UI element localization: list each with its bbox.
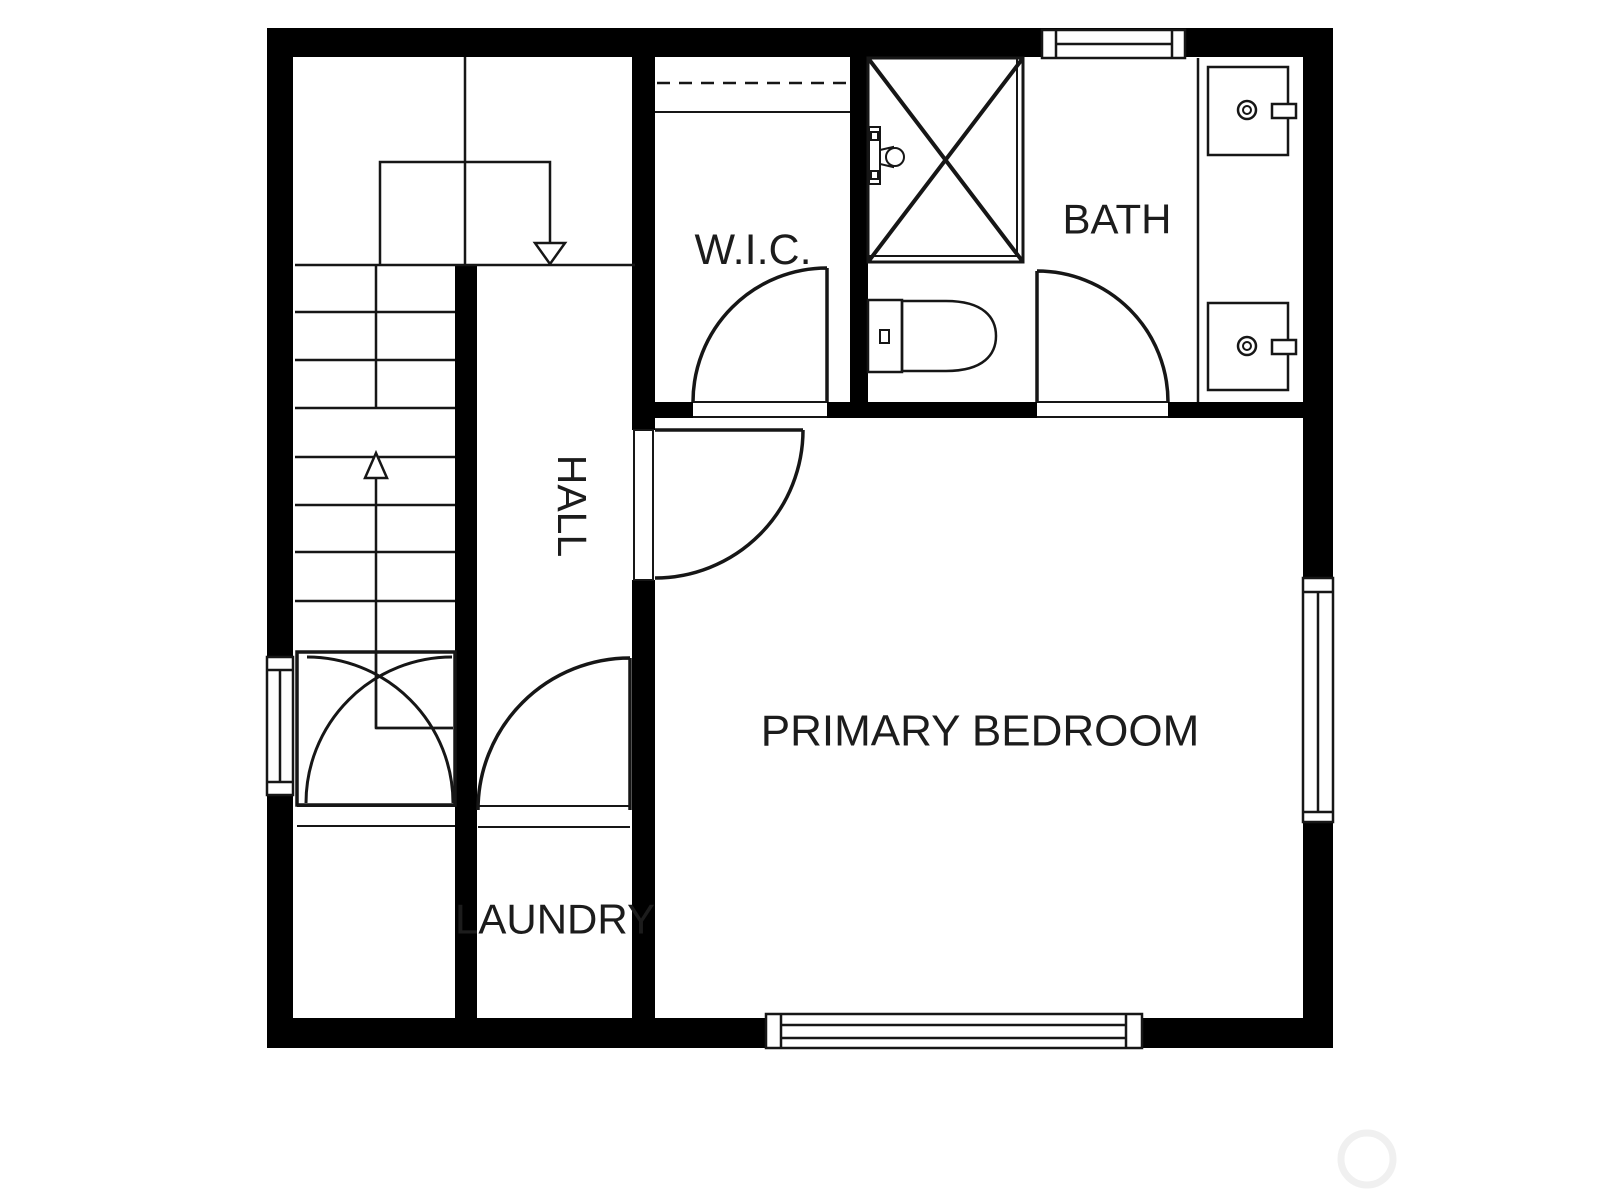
vanity [1198, 58, 1296, 402]
toilet-flush-button [880, 330, 889, 343]
watermark-circle [1341, 1133, 1393, 1185]
threshold-lines [297, 402, 1168, 827]
floor-plan-page: W.I.C. BATH HALL PRIMARY BEDROOM LAUNDRY [0, 0, 1600, 1200]
wall-wic-shower [850, 57, 868, 402]
toilet [868, 300, 996, 372]
primary-bedroom-label: PRIMARY BEDROOM [761, 707, 1199, 756]
stair-vestibule [297, 652, 455, 805]
wic-door [693, 268, 827, 402]
double-door-arc-left [307, 657, 453, 803]
floor-plan: W.I.C. BATH HALL PRIMARY BEDROOM LAUNDRY [0, 0, 1600, 1200]
toilet-tank [868, 300, 902, 372]
stairs-up-arrow-shaft [376, 478, 453, 728]
shower-valve-icon [869, 127, 904, 184]
hall-label: HALL [549, 455, 595, 558]
window-bottom-bg [766, 1014, 1142, 1048]
laundry-label: LAUNDRY [455, 896, 655, 943]
bedroom-door-jamb [632, 430, 655, 580]
sink-bottom-icon [1208, 303, 1296, 390]
wall-right [1303, 28, 1333, 1048]
hall-door [478, 658, 630, 810]
linework [267, 30, 1333, 1048]
wic-label: W.I.C. [694, 226, 811, 274]
toilet-bowl [902, 301, 996, 371]
bath-label: BATH [1063, 196, 1172, 243]
wall-left [267, 28, 293, 1048]
bath-door [1037, 271, 1168, 402]
windows [267, 30, 1333, 1048]
bedroom-door [655, 430, 803, 578]
wall-openings [267, 30, 1333, 1048]
walls [267, 28, 1333, 1048]
stairs-down-arrow-head-icon [535, 243, 565, 264]
double-door-arc-right [306, 657, 452, 803]
shower [868, 58, 1023, 262]
wic-closet [655, 83, 850, 112]
sink-top-icon [1208, 67, 1296, 155]
